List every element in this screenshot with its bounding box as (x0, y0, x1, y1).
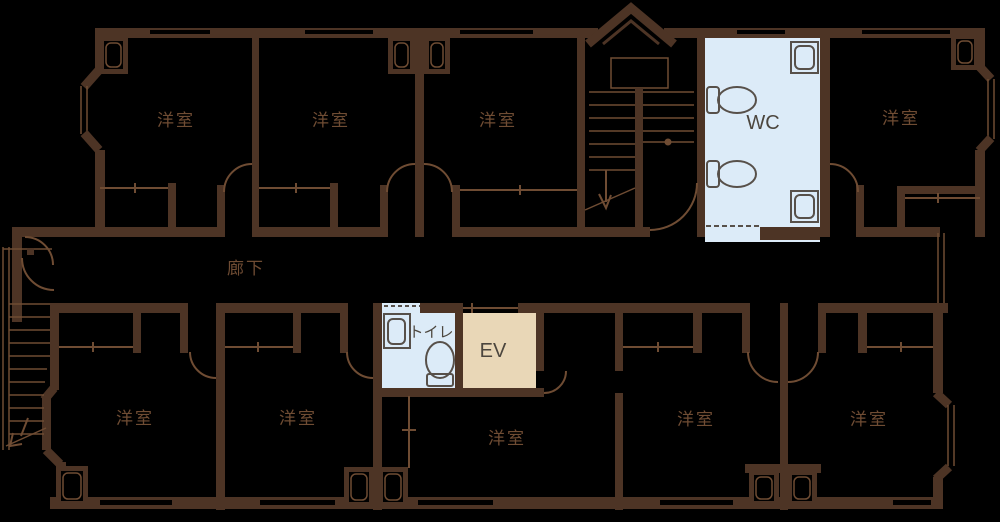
sink-room6 (344, 467, 374, 507)
stair-treads-left (589, 92, 635, 170)
window-top-2 (305, 30, 373, 34)
toilet-label: トイレ (408, 324, 453, 341)
bay-window-room4 (979, 66, 994, 151)
floor-plan: 洋室 洋室 洋室 洋室 洋室 洋室 洋室 洋室 洋室 WC トイレ EV 廊下 (0, 0, 1000, 522)
window-bottom-2 (260, 500, 335, 505)
elevator-label: EV (480, 340, 507, 362)
room3-door (424, 164, 452, 192)
room4-door (830, 164, 858, 192)
window-top-wc (737, 30, 785, 34)
bay-window-room8 (936, 393, 954, 479)
room5-door (190, 352, 216, 378)
sink-room3 (424, 36, 450, 74)
outer-walls-top (95, 28, 985, 38)
window-top-1 (150, 30, 210, 34)
wc-label: WC (746, 112, 779, 134)
room1-closet (100, 183, 176, 228)
room5-closet (59, 310, 141, 353)
room-bottom-3-label: 洋室 (677, 410, 715, 429)
room8-door (788, 352, 818, 382)
bay-window-room1 (81, 70, 99, 150)
stair-direction-arrow (585, 170, 635, 210)
stair-treads-right (643, 92, 694, 142)
room1-door (224, 164, 252, 192)
room7-closet (623, 310, 702, 353)
room3-closet (460, 185, 577, 195)
room7-door (748, 352, 778, 382)
room-bottom-4-label: 洋室 (850, 410, 888, 429)
stair-center-wall (635, 88, 643, 228)
stairwell-door (650, 183, 697, 230)
stair-newel-dot (665, 139, 672, 146)
sink-room5 (56, 466, 88, 506)
corridor-entry-double-door (22, 237, 54, 290)
corridor-label: 廊下 (227, 259, 265, 278)
room6-closet (225, 310, 301, 353)
top-row-walls (95, 28, 985, 237)
room-top-4-label: 洋室 (882, 109, 920, 128)
window-bottom-5 (893, 500, 931, 505)
room-top-3-label: 洋室 (479, 111, 517, 130)
east-walls (933, 233, 954, 509)
room2-closet (259, 183, 338, 228)
room-bottom-2-label: 洋室 (279, 409, 317, 428)
sink-room8 (787, 470, 817, 506)
room8-closet (867, 342, 935, 352)
sink-room1 (99, 36, 128, 74)
center-room-door (544, 371, 566, 393)
room6-door (347, 352, 373, 378)
window-bottom-3 (418, 500, 493, 505)
floor-plan-canvas: 洋室 洋室 洋室 洋室 洋室 洋室 洋室 洋室 洋室 WC トイレ EV 廊下 (0, 0, 1000, 522)
sink-room2 (388, 36, 415, 74)
room-top-1-label: 洋室 (157, 111, 195, 130)
center-room-partition (402, 396, 416, 468)
west-walls (12, 227, 66, 502)
exterior-stair-arrow (6, 418, 46, 446)
central-staircase (585, 58, 694, 228)
entrance-gable (588, 8, 674, 44)
sink-room-center (378, 467, 408, 507)
window-bottom-4 (660, 500, 733, 505)
room-bottom-1-label: 洋室 (116, 409, 154, 428)
room-top-2-label: 洋室 (312, 111, 350, 130)
window-top-4 (862, 30, 950, 34)
window-bottom-1 (100, 500, 172, 505)
room-bottom-center-label: 洋室 (488, 429, 526, 448)
sink-room4 (951, 34, 979, 70)
room2-door (387, 164, 415, 192)
window-top-3 (460, 30, 533, 34)
elevator-door-line (463, 303, 518, 313)
toilet-room (382, 303, 455, 388)
sink-room7 (749, 470, 779, 506)
stair-landing-dot (27, 248, 34, 255)
